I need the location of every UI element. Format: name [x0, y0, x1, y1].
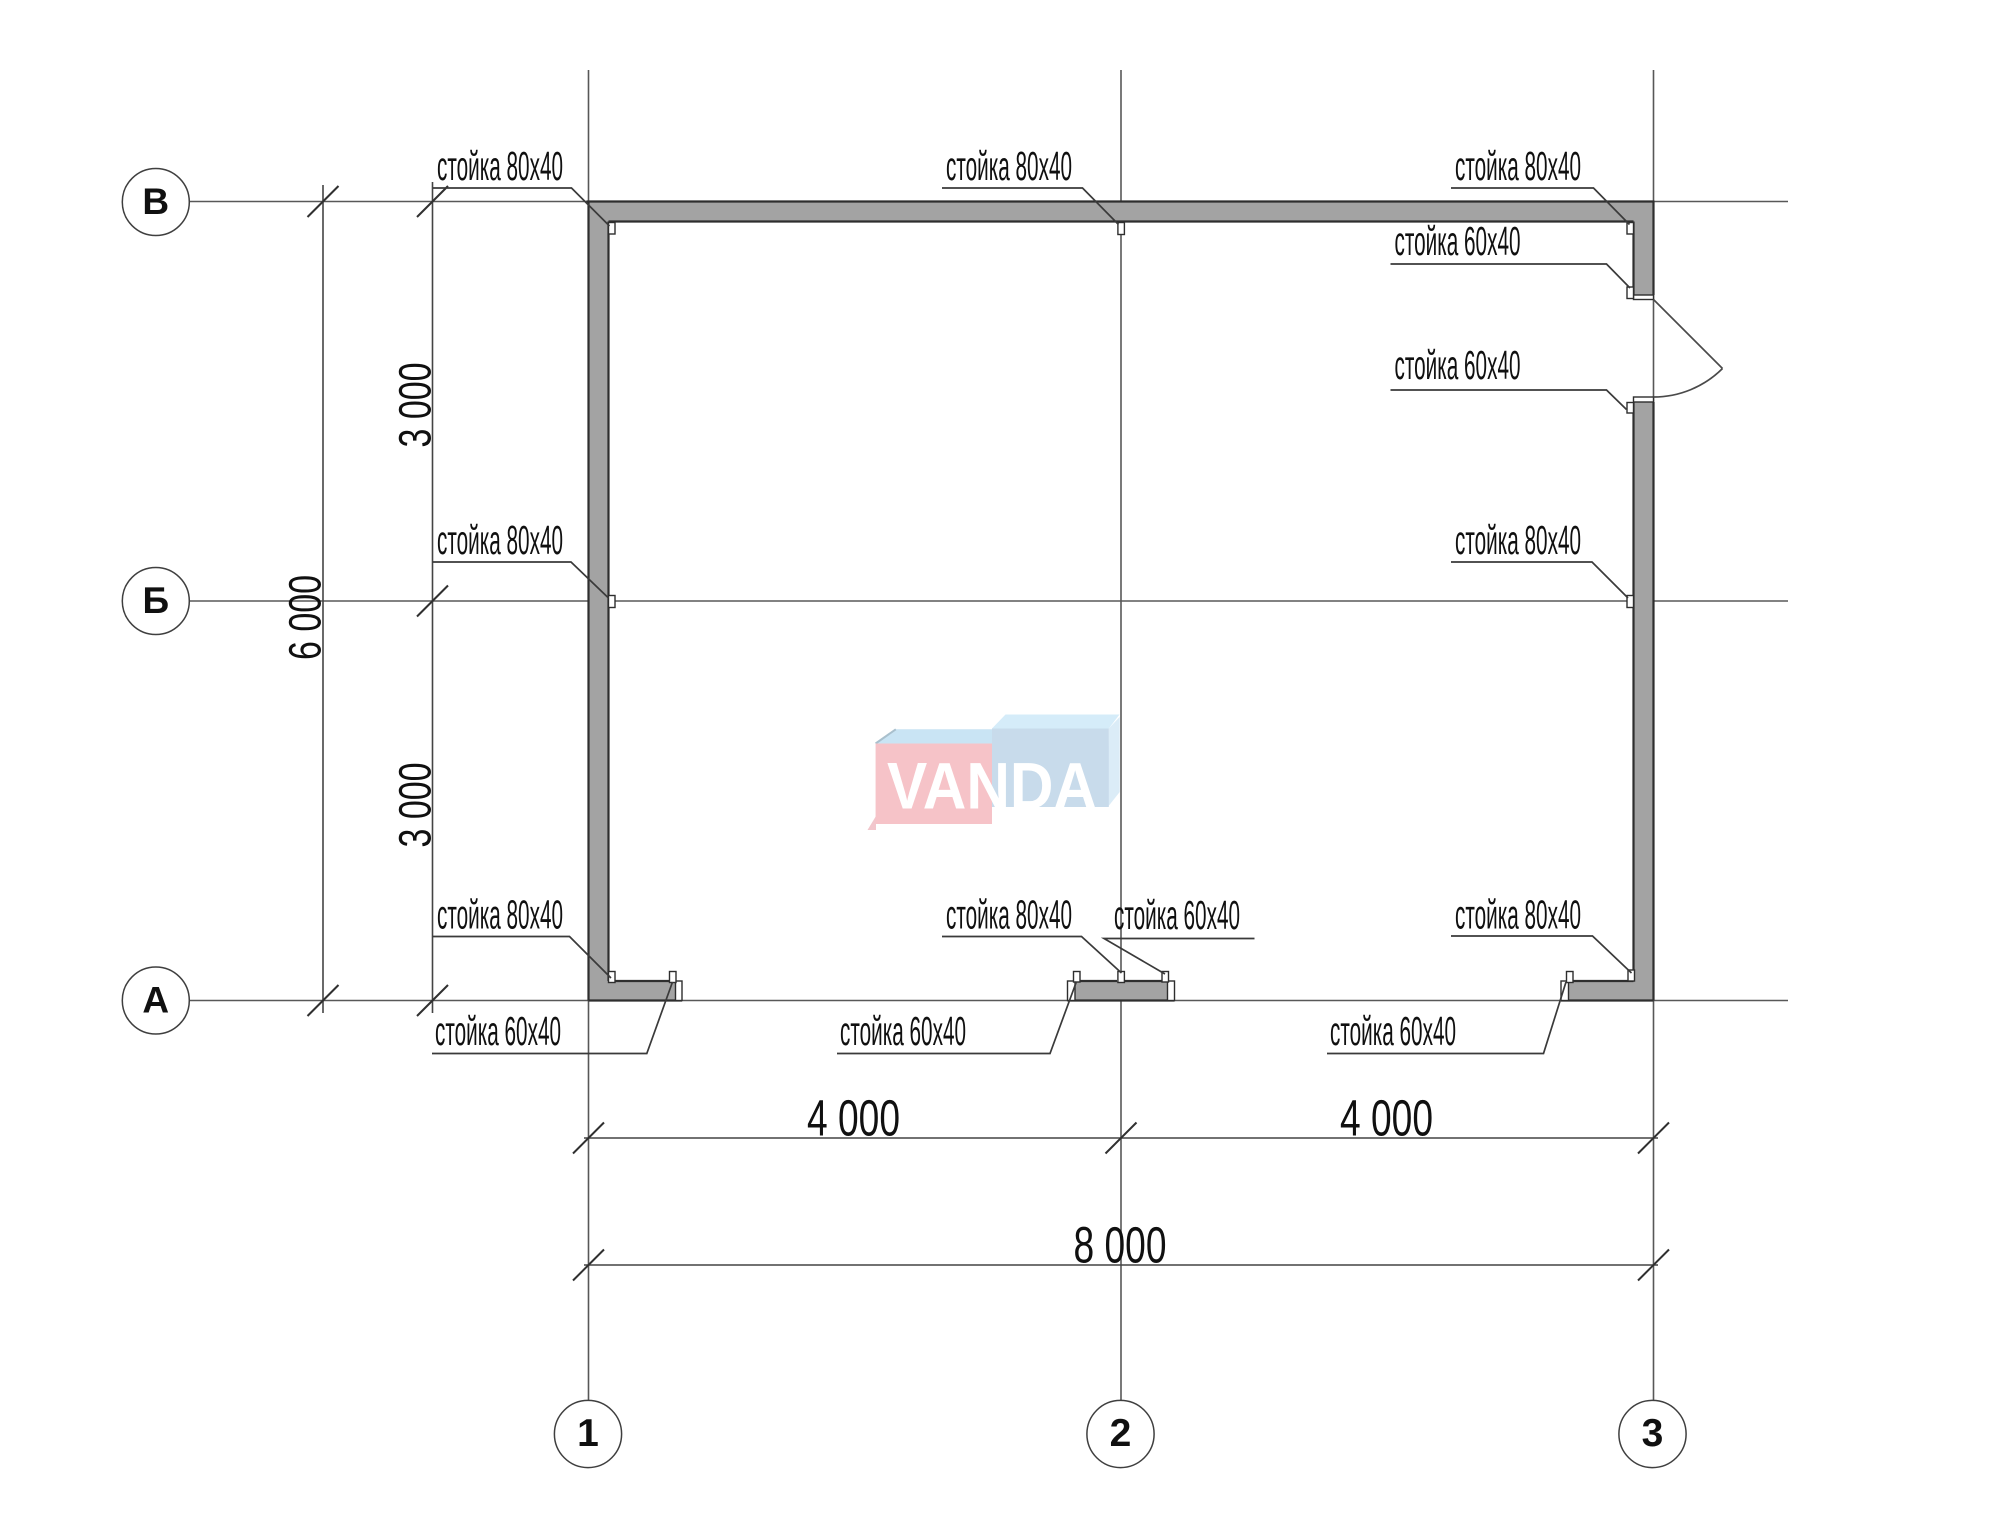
svg-text:VANDA: VANDA — [887, 749, 1097, 823]
svg-text:стойка 60х40: стойка 60х40 — [840, 1008, 966, 1054]
svg-text:Б: Б — [143, 580, 170, 621]
svg-text:стойка 80х40: стойка 80х40 — [946, 892, 1072, 938]
svg-text:стойка 80х40: стойка 80х40 — [1455, 517, 1581, 563]
svg-text:стойка 80х40: стойка 80х40 — [1455, 143, 1581, 189]
svg-text:В: В — [142, 181, 169, 222]
svg-text:стойка 60х40: стойка 60х40 — [1114, 892, 1240, 938]
svg-text:стойка 80х40: стойка 80х40 — [437, 143, 563, 189]
svg-text:стойка 80х40: стойка 80х40 — [1455, 892, 1581, 938]
svg-text:стойка 60х40: стойка 60х40 — [435, 1008, 561, 1054]
svg-text:2: 2 — [1110, 1412, 1132, 1455]
svg-text:4 000: 4 000 — [807, 1090, 900, 1147]
svg-text:стойка 60х40: стойка 60х40 — [1330, 1008, 1456, 1054]
svg-text:4 000: 4 000 — [1340, 1090, 1433, 1147]
svg-text:стойка 60х40: стойка 60х40 — [1395, 218, 1521, 264]
svg-text:стойка 80х40: стойка 80х40 — [946, 143, 1072, 189]
svg-text:стойка 60х40: стойка 60х40 — [1395, 342, 1521, 388]
svg-text:3 000: 3 000 — [390, 763, 441, 848]
svg-text:3: 3 — [1642, 1412, 1664, 1455]
svg-text:стойка 80х40: стойка 80х40 — [437, 892, 563, 938]
svg-text:стойка 80х40: стойка 80х40 — [437, 517, 563, 563]
svg-text:6 000: 6 000 — [280, 575, 331, 660]
svg-text:А: А — [142, 980, 169, 1021]
svg-text:1: 1 — [577, 1412, 599, 1455]
svg-text:3 000: 3 000 — [390, 363, 441, 448]
svg-text:8 000: 8 000 — [1074, 1217, 1167, 1274]
